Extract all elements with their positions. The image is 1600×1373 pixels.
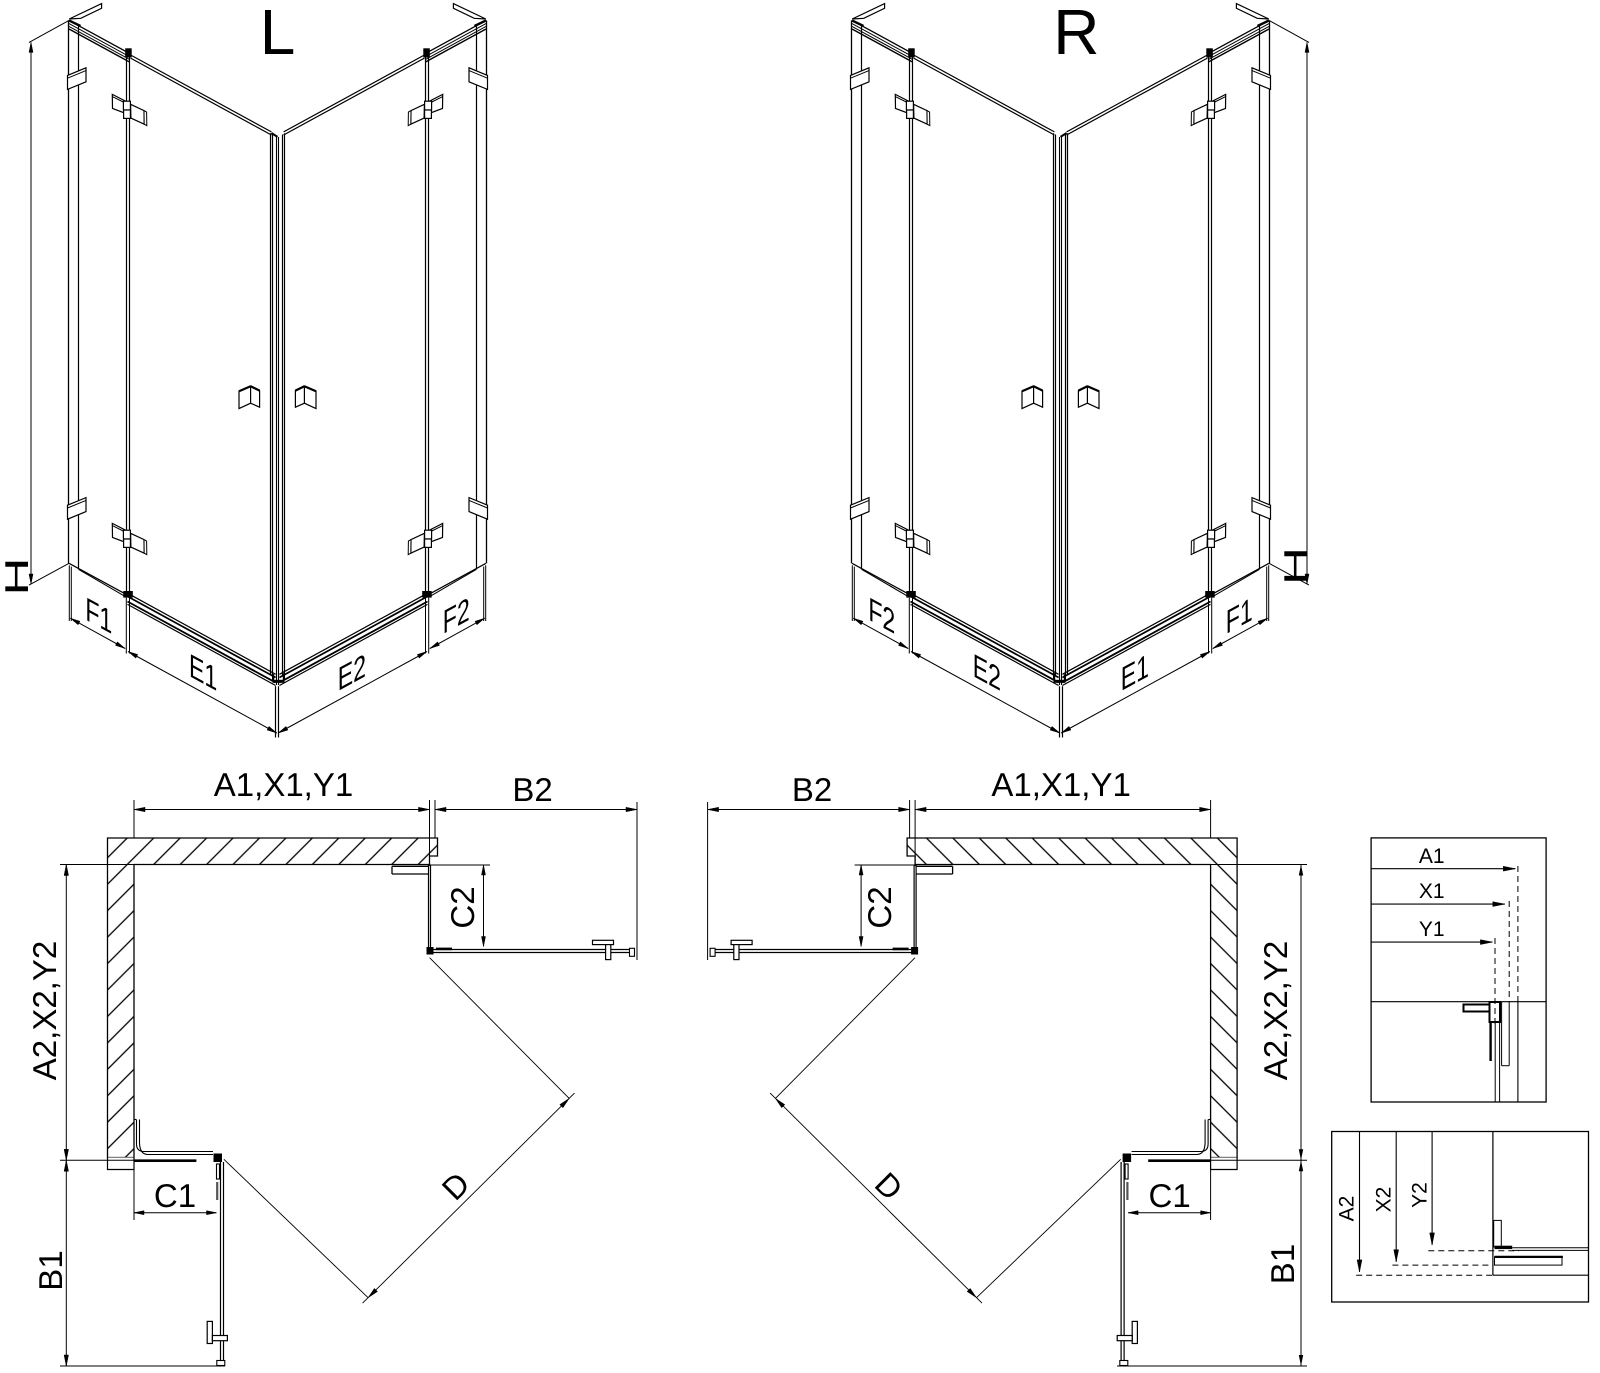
svg-text:H: H <box>1277 547 1314 585</box>
svg-text:A2: A2 <box>1336 1196 1359 1222</box>
svg-text:B1: B1 <box>32 1250 69 1290</box>
svg-text:C1: C1 <box>154 1177 196 1214</box>
svg-text:L: L <box>260 0 296 68</box>
svg-text:A1,X1,Y1: A1,X1,Y1 <box>214 766 353 803</box>
svg-text:X2: X2 <box>1373 1187 1396 1213</box>
svg-text:C2: C2 <box>861 886 898 928</box>
svg-text:A2,X2,Y2: A2,X2,Y2 <box>26 941 63 1080</box>
svg-text:X1: X1 <box>1419 880 1445 903</box>
svg-text:Y2: Y2 <box>1409 1182 1432 1208</box>
svg-text:C1: C1 <box>1149 1177 1191 1214</box>
svg-text:A1: A1 <box>1419 845 1445 868</box>
svg-text:R: R <box>1053 0 1099 68</box>
svg-text:A2,X2,Y2: A2,X2,Y2 <box>1257 941 1294 1080</box>
svg-text:A1,X1,Y1: A1,X1,Y1 <box>991 766 1130 803</box>
svg-text:B1: B1 <box>1264 1244 1301 1284</box>
svg-text:C2: C2 <box>444 886 481 928</box>
svg-text:Y1: Y1 <box>1419 918 1445 941</box>
svg-text:H: H <box>0 557 35 595</box>
svg-text:B2: B2 <box>512 771 552 808</box>
svg-text:B2: B2 <box>792 771 832 808</box>
